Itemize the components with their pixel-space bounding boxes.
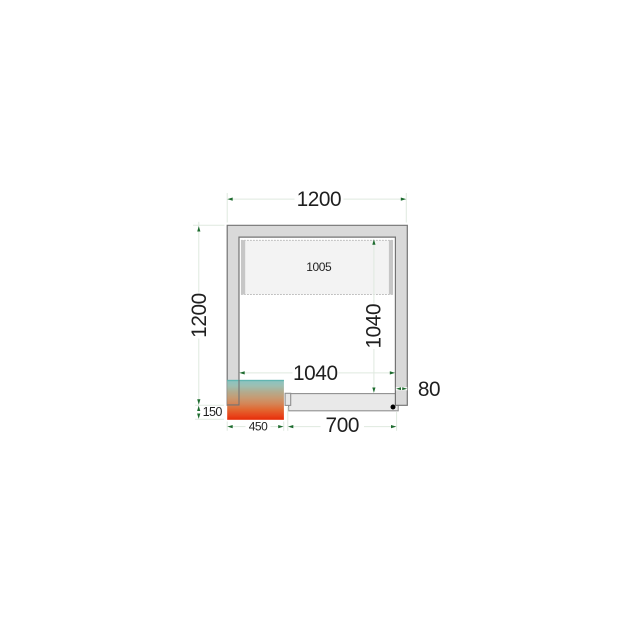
svg-text:80: 80 — [418, 378, 440, 401]
svg-text:1005: 1005 — [306, 260, 332, 274]
svg-text:1040: 1040 — [293, 362, 338, 385]
svg-text:700: 700 — [326, 414, 360, 437]
svg-text:1200: 1200 — [297, 188, 342, 211]
svg-text:450: 450 — [249, 420, 268, 434]
svg-text:150: 150 — [203, 405, 223, 419]
svg-text:1200: 1200 — [188, 293, 211, 338]
svg-text:1040: 1040 — [363, 304, 386, 349]
